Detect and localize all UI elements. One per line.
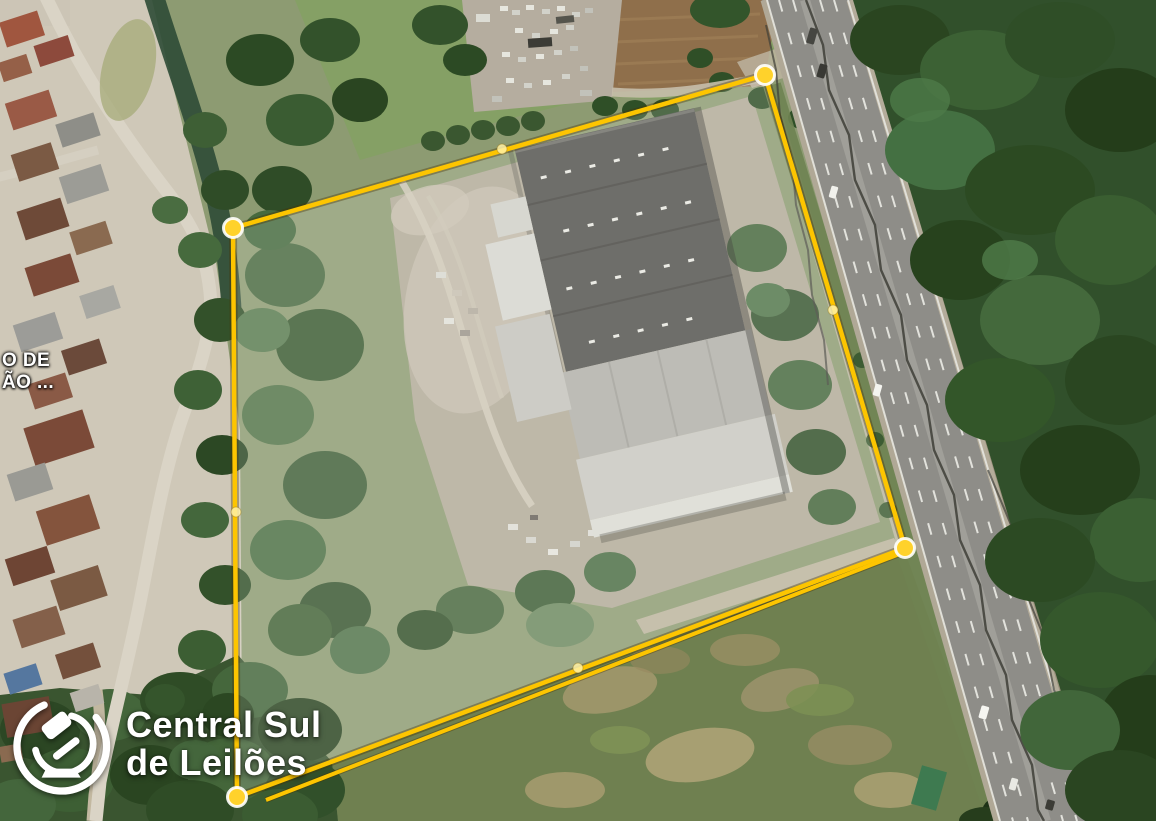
brand-wordmark: Central Sul de Leilões (126, 706, 322, 782)
brand-line2: de Leilões (126, 744, 322, 782)
satellite-map-view: O DE ÃO ... Central Sul de Leilões (0, 0, 1156, 821)
parcel-midpoint-handle[interactable] (573, 663, 583, 673)
parcel-vertex-handle[interactable] (756, 66, 775, 85)
parcel-midpoint-handle[interactable] (231, 507, 241, 517)
map-place-label: O DE ÃO ... (2, 350, 54, 394)
parcel-vertex-handle[interactable] (896, 539, 915, 558)
parcel-midpoint-handle[interactable] (828, 305, 838, 315)
map-place-label-line2: ÃO ... (2, 372, 54, 394)
map-place-label-line1: O DE (2, 350, 54, 372)
parcel-vertex-handle[interactable] (224, 219, 243, 238)
gavel-icon (8, 688, 120, 800)
watermark: Central Sul de Leilões (8, 688, 322, 800)
parcel-midpoint-handle[interactable] (497, 144, 507, 154)
brand-line1: Central Sul (126, 706, 322, 744)
